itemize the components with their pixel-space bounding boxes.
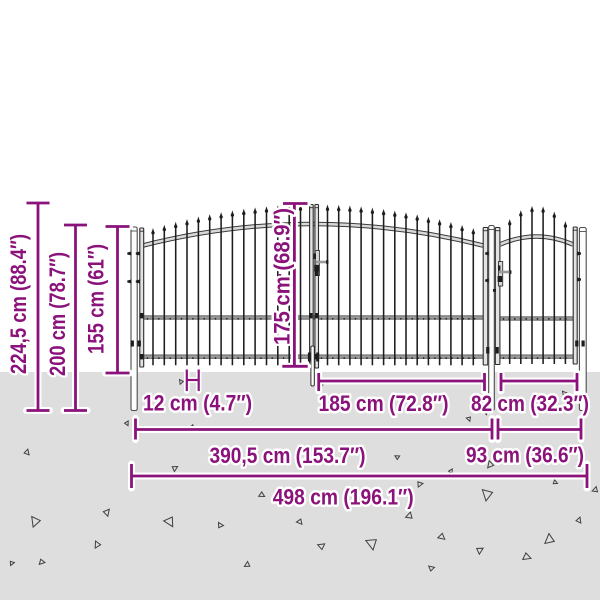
svg-text:200 cm (78.7″): 200 cm (78.7″) <box>45 252 70 376</box>
svg-text:498 cm (196.1″): 498 cm (196.1″) <box>273 485 414 510</box>
svg-text:175 cm (68.9″): 175 cm (68.9″) <box>270 208 295 345</box>
svg-text:155 cm (61″): 155 cm (61″) <box>84 244 109 354</box>
svg-text:82 cm (32.3″): 82 cm (32.3″) <box>471 391 589 416</box>
svg-text:12 cm (4.7″): 12 cm (4.7″) <box>143 391 252 416</box>
svg-text:224,5 cm (88.4″): 224,5 cm (88.4″) <box>6 234 31 374</box>
svg-text:185 cm (72.8″): 185 cm (72.8″) <box>319 391 449 416</box>
svg-text:390,5 cm (153.7″): 390,5 cm (153.7″) <box>210 443 366 468</box>
svg-text:93 cm (36.6″): 93 cm (36.6″) <box>466 443 584 468</box>
